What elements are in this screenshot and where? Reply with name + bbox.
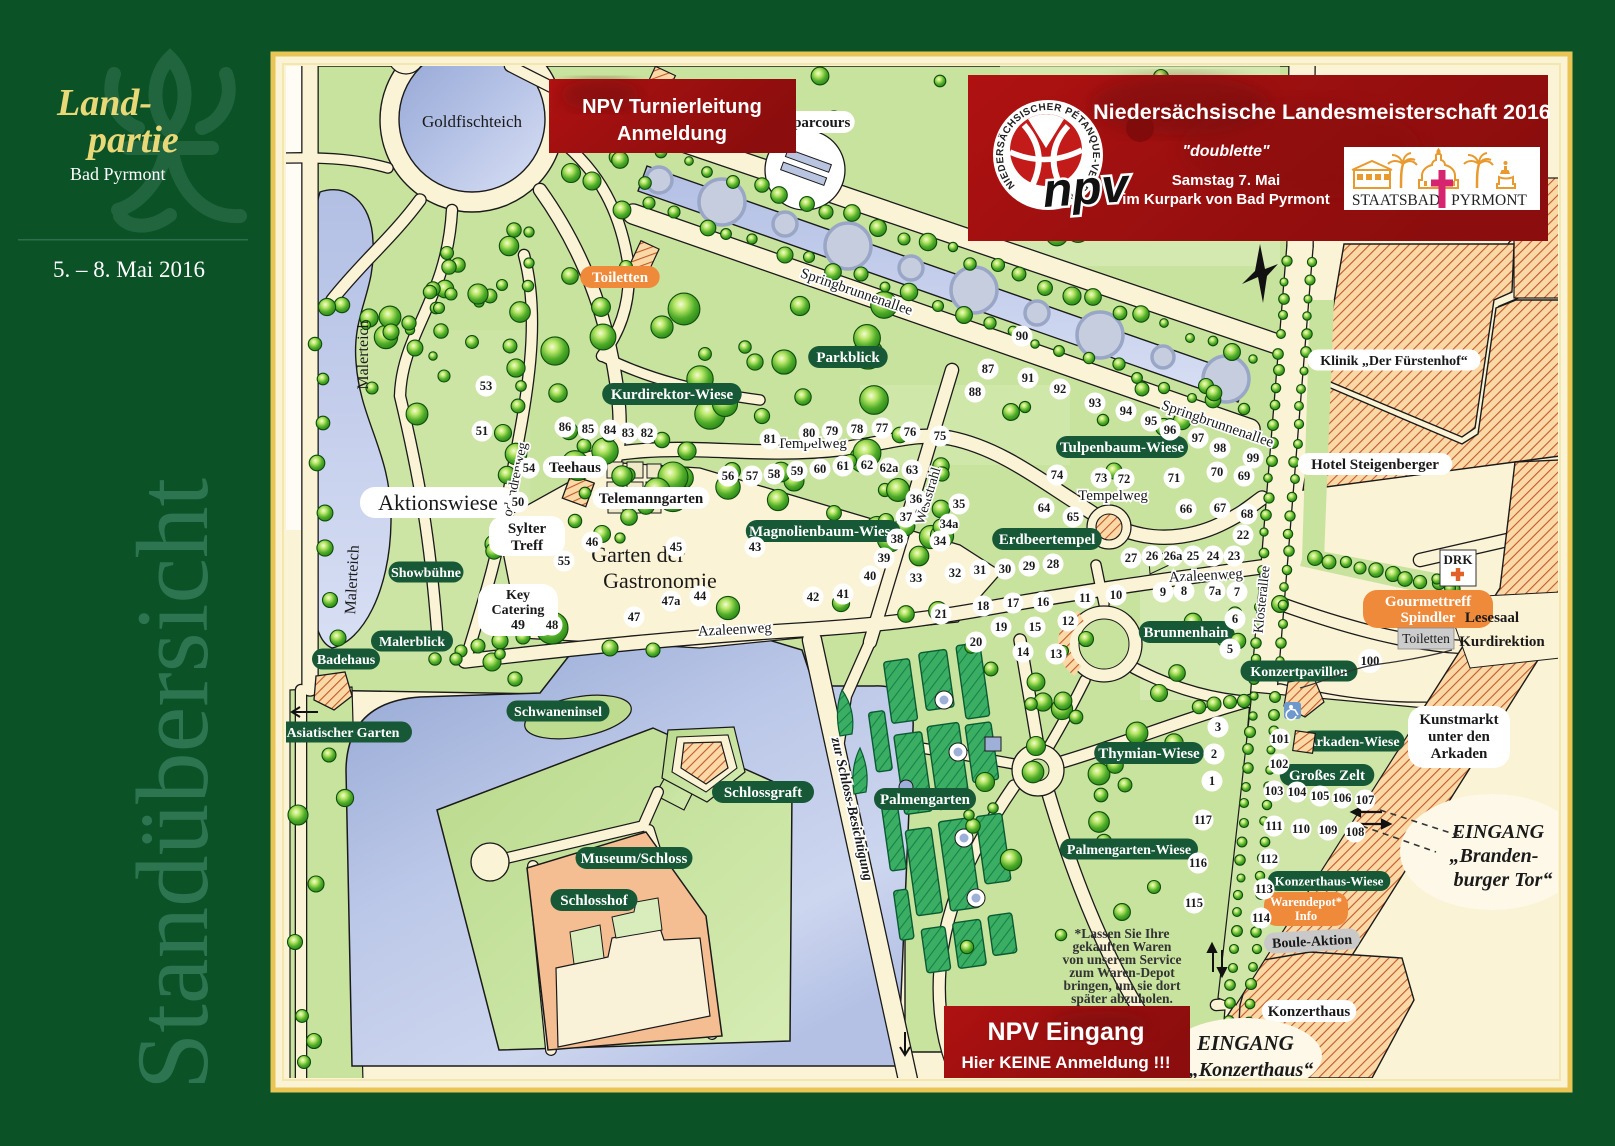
svg-text:36: 36 [910,492,923,506]
svg-text:22: 22 [1237,528,1250,542]
svg-text:117: 117 [1194,813,1212,827]
svg-text:Arkaden: Arkaden [1431,746,1488,762]
svg-text:94: 94 [1120,404,1133,418]
svg-text:9: 9 [1160,585,1166,599]
svg-text:60: 60 [814,462,827,476]
svg-text:48: 48 [546,618,559,632]
svg-text:Großes Zelt: Großes Zelt [1289,768,1365,784]
svg-text:114: 114 [1252,911,1271,925]
svg-text:Catering: Catering [492,603,545,618]
svg-text:32: 32 [949,566,962,580]
svg-text:108: 108 [1346,825,1365,839]
svg-text:91: 91 [1022,371,1035,385]
svg-text:Schwaneninsel: Schwaneninsel [514,705,602,720]
svg-text:19: 19 [995,620,1008,634]
svg-text:partie: partie [85,119,179,161]
svg-text:67: 67 [1214,501,1227,515]
svg-text:Tempelweg: Tempelweg [1078,488,1148,504]
svg-text:81: 81 [764,432,777,446]
svg-text:62: 62 [861,458,874,472]
svg-text:5. – 8. Mai 2016: 5. – 8. Mai 2016 [53,257,205,282]
svg-text:später abzuholen.: später abzuholen. [1071,991,1173,1006]
svg-text:34a: 34a [940,517,960,531]
svg-text:30: 30 [999,562,1012,576]
svg-text:Schlossgraft: Schlossgraft [724,785,802,801]
svg-text:113: 113 [1255,882,1273,896]
svg-text:Kurdirektion: Kurdirektion [1459,634,1545,650]
svg-text:84: 84 [604,423,617,437]
svg-text:Standübersicht: Standübersicht [116,477,230,1090]
svg-text:Teehaus: Teehaus [549,460,601,476]
svg-text:Telemanngarten: Telemanngarten [599,491,704,507]
svg-text:13: 13 [1050,647,1063,661]
svg-text:57: 57 [746,469,759,483]
svg-text:6: 6 [1232,612,1238,626]
svg-text:7a: 7a [1209,584,1222,598]
svg-text:78: 78 [851,422,864,436]
svg-text:47: 47 [628,610,641,624]
svg-text:„Branden-: „Branden- [1450,845,1539,867]
svg-text:43: 43 [749,540,762,554]
svg-text:72: 72 [1118,472,1131,486]
svg-text:Key: Key [506,588,530,603]
svg-text:44: 44 [694,589,707,603]
svg-text:Arkaden-Wiese: Arkaden-Wiese [1306,735,1399,750]
svg-text:70: 70 [1211,465,1224,479]
svg-text:96: 96 [1164,423,1177,437]
svg-text:2: 2 [1211,747,1217,761]
svg-text:Hier KEINE Anmeldung !!!: Hier KEINE Anmeldung !!! [961,1053,1170,1072]
svg-text:42: 42 [807,590,820,604]
svg-text:Spindler: Spindler [1400,610,1455,626]
svg-text:Erdbeertempel: Erdbeertempel [999,532,1096,548]
svg-text:NPV Eingang: NPV Eingang [988,1018,1145,1046]
svg-text:Bad Pyrmont: Bad Pyrmont [70,164,166,184]
svg-text:86: 86 [559,420,572,434]
svg-text:10: 10 [1110,588,1123,602]
svg-text:12: 12 [1062,614,1075,628]
svg-text:93: 93 [1089,396,1102,410]
svg-text:37: 37 [900,510,913,524]
svg-text:58: 58 [768,467,781,481]
svg-text:8: 8 [1181,584,1187,598]
svg-text:24: 24 [1207,549,1220,563]
svg-text:7: 7 [1234,585,1240,599]
svg-text:npv: npv [1041,159,1132,218]
svg-text:54: 54 [523,461,536,475]
svg-text:38: 38 [891,532,904,546]
svg-text:Schlosshof: Schlosshof [560,893,629,909]
svg-text:Palmengarten-Wiese: Palmengarten-Wiese [1067,843,1191,858]
svg-text:Treff: Treff [511,538,544,554]
svg-text:Parkblick: Parkblick [816,350,880,366]
svg-text:71: 71 [1168,471,1181,485]
svg-text:105: 105 [1311,789,1330,803]
svg-text:83: 83 [622,426,635,440]
svg-text:26: 26 [1146,549,1159,563]
svg-text:3: 3 [1215,720,1221,734]
svg-text:28: 28 [1047,557,1060,571]
svg-text:85: 85 [582,422,595,436]
svg-text:Land-: Land- [56,82,152,124]
svg-text:Museum/Schloss: Museum/Schloss [581,851,688,867]
svg-text:25: 25 [1187,549,1200,563]
svg-text:Niedersächsische Landesmeister: Niedersächsische Landesmeisterschaft 201… [1093,100,1551,124]
svg-text:Aktionswiese: Aktionswiese [378,490,498,515]
svg-text:51: 51 [476,424,489,438]
svg-text:53: 53 [480,379,493,393]
svg-text:73: 73 [1095,471,1108,485]
svg-text:Kunstmarkt: Kunstmarkt [1419,712,1498,728]
svg-text:18: 18 [977,599,990,613]
svg-text:Malerteich: Malerteich [355,320,372,389]
svg-text:49: 49 [511,618,525,633]
svg-text:106: 106 [1333,791,1352,805]
svg-text:35: 35 [953,497,966,511]
svg-text:15: 15 [1029,620,1042,634]
svg-text:102: 102 [1270,757,1289,771]
svg-text:Lesesaal: Lesesaal [1465,610,1519,626]
svg-text:56: 56 [722,469,735,483]
svg-text:NPV Turnierleitung: NPV Turnierleitung [582,96,762,118]
svg-text:33: 33 [910,571,923,585]
svg-text:Asiatischer Garten: Asiatischer Garten [287,726,400,741]
svg-text:Toiletten: Toiletten [1402,631,1450,646]
svg-text:16: 16 [1037,595,1050,609]
svg-text:82: 82 [641,426,654,440]
svg-text:Thymian-Wiese: Thymian-Wiese [1098,746,1200,762]
svg-text:110: 110 [1292,822,1310,836]
svg-text:74: 74 [1051,468,1064,482]
svg-text:Magnolienbaum-Wiese: Magnolienbaum-Wiese [749,524,897,540]
svg-text:Kurdirektor-Wiese: Kurdirektor-Wiese [611,387,734,403]
svg-text:EINGANG: EINGANG [1196,1031,1294,1055]
svg-text:burger Tor“: burger Tor“ [1454,869,1553,891]
svg-text:80: 80 [803,426,816,440]
svg-text:Hotel Steigenberger: Hotel Steigenberger [1311,457,1439,473]
svg-text:65: 65 [1067,510,1080,524]
svg-text:STAATSBAD: STAATSBAD [1352,192,1440,209]
svg-text:Tulpenbaum-Wiese: Tulpenbaum-Wiese [1060,440,1185,456]
svg-text:87: 87 [982,362,995,376]
svg-text:Malerteich: Malerteich [342,545,363,615]
svg-text:92: 92 [1054,382,1067,396]
svg-text:„Konzerthaus“: „Konzerthaus“ [1189,1059,1314,1081]
svg-text:59: 59 [791,464,804,478]
svg-text:34: 34 [934,534,947,548]
svg-text:95: 95 [1145,414,1158,428]
svg-text:"doublette": "doublette" [1182,143,1270,160]
svg-text:Sylter: Sylter [508,521,547,537]
svg-text:5: 5 [1227,642,1233,656]
svg-text:Info: Info [1295,909,1317,923]
svg-text:97: 97 [1192,431,1205,445]
svg-text:1: 1 [1209,774,1215,788]
svg-text:41: 41 [837,587,850,601]
svg-text:75: 75 [934,429,947,443]
svg-text:104: 104 [1288,785,1308,799]
svg-text:27: 27 [1125,551,1138,565]
svg-text:62a: 62a [880,461,900,475]
svg-text:31: 31 [974,563,987,577]
svg-text:Showbühne: Showbühne [391,566,461,581]
svg-text:Badehaus: Badehaus [317,653,376,668]
svg-text:26a: 26a [1164,549,1184,563]
svg-text:11: 11 [1079,591,1091,605]
svg-text:Gourmettreff: Gourmettreff [1385,594,1472,610]
svg-text:99: 99 [1247,451,1260,465]
svg-text:109: 109 [1319,823,1338,837]
svg-text:40: 40 [864,569,877,583]
svg-text:Malerblick: Malerblick [379,635,445,650]
svg-text:68: 68 [1241,507,1254,521]
svg-text:unter den: unter den [1428,729,1490,745]
svg-text:64: 64 [1038,501,1051,515]
svg-text:116: 116 [1189,856,1207,870]
svg-text:61: 61 [837,459,850,473]
svg-text:46: 46 [586,535,599,549]
svg-text:PYRMONT: PYRMONT [1451,192,1527,209]
svg-text:63: 63 [906,463,919,477]
svg-text:Klinik „Der Fürstenhof“: Klinik „Der Fürstenhof“ [1320,354,1468,369]
svg-text:98: 98 [1214,441,1227,455]
svg-text:29: 29 [1023,559,1036,573]
svg-text:Toiletten: Toiletten [592,270,649,286]
svg-text:90: 90 [1016,329,1029,343]
svg-text:Anmeldung: Anmeldung [617,123,727,145]
svg-text:101: 101 [1271,732,1290,746]
svg-text:39: 39 [878,551,891,565]
svg-text:55: 55 [558,554,571,568]
svg-text:23: 23 [1228,549,1241,563]
svg-text:Samstag 7. Mai: Samstag 7. Mai [1172,172,1280,189]
svg-text:47a: 47a [662,594,682,608]
svg-text:Konzerthaus: Konzerthaus [1268,1004,1351,1020]
svg-text:20: 20 [970,635,983,649]
svg-text:Goldfischteich: Goldfischteich [422,112,523,131]
svg-text:107: 107 [1356,793,1375,807]
svg-text:50: 50 [512,495,525,509]
svg-text:69: 69 [1238,469,1251,483]
svg-text:111: 111 [1265,819,1282,833]
svg-text:DRK: DRK [1444,552,1474,567]
svg-text:88: 88 [969,385,982,399]
svg-text:112: 112 [1260,852,1278,866]
svg-text:76: 76 [904,425,917,439]
svg-text:21: 21 [935,607,948,621]
svg-text:14: 14 [1017,645,1030,659]
svg-text:Konzerthaus-Wiese: Konzerthaus-Wiese [1275,873,1384,888]
svg-text:17: 17 [1007,596,1020,610]
svg-text:Brunnenhain: Brunnenhain [1143,625,1229,641]
svg-text:Warendepot*: Warendepot* [1270,895,1342,909]
svg-text:103: 103 [1265,784,1284,798]
svg-text:115: 115 [1185,896,1203,910]
svg-text:79: 79 [826,424,839,438]
svg-text:Palmengarten: Palmengarten [880,792,971,808]
svg-text:77: 77 [876,421,889,435]
svg-text:45: 45 [670,540,683,554]
svg-text:66: 66 [1180,502,1193,516]
svg-text:im Kurpark von Bad Pyrmont: im Kurpark von Bad Pyrmont [1122,191,1330,208]
svg-text:EINGANG: EINGANG [1451,821,1545,843]
